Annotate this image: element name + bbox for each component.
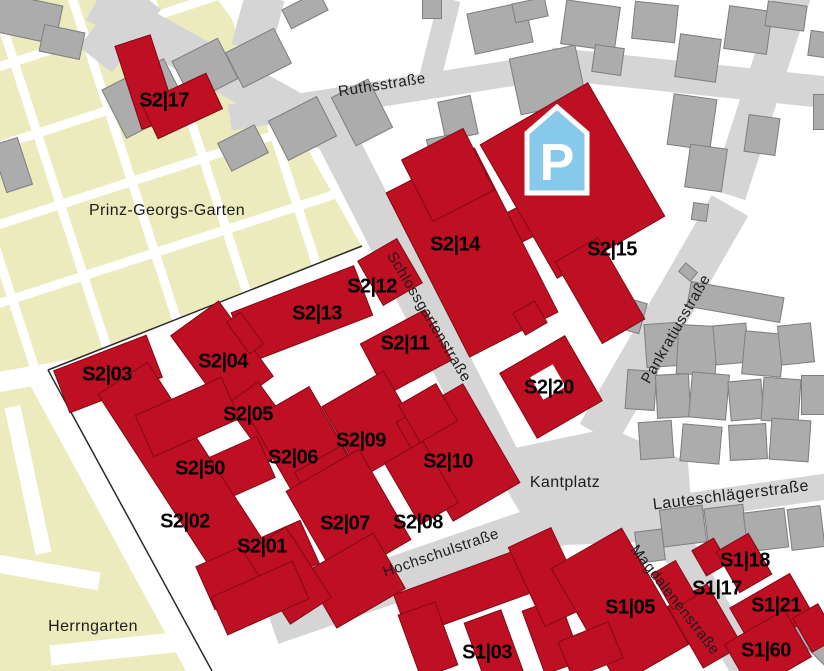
city-building (761, 377, 802, 424)
building-label-s1-21: S1|21 (751, 595, 801, 618)
building-label-s2-06: S2|06 (268, 447, 318, 470)
building-label-s1-18: S1|18 (720, 550, 770, 573)
city-building (638, 420, 675, 460)
garden-path (0, 554, 101, 591)
building-label-s2-20: S2|20 (524, 377, 574, 400)
building-label-s2-09: S2|09 (336, 430, 386, 453)
building-label-s1-03: S1|03 (462, 642, 512, 665)
building-label-s2-07: S2|07 (320, 513, 370, 536)
city-building (777, 322, 815, 365)
building-label-s2-10: S2|10 (423, 451, 473, 474)
city-building (727, 379, 764, 422)
city-building (674, 33, 722, 82)
city-building (560, 0, 621, 51)
building-label-s2-05: S2|05 (223, 404, 273, 427)
city-building (422, 0, 442, 19)
building-label-s2-04: S2|04 (198, 351, 248, 374)
building-label-s2-11: S2|11 (381, 333, 430, 356)
building-label-s2-02: S2|02 (160, 511, 210, 534)
city-building (728, 423, 768, 461)
city-building (281, 0, 328, 29)
parking-letter: P (540, 134, 575, 192)
area-label-kantplatz: Kantplatz (530, 474, 600, 492)
building-label-s2-01: S2|01 (237, 536, 287, 559)
city-building (591, 44, 625, 76)
campus-map: Prinz-Georgs-GartenHerrngartenKantplatzR… (0, 0, 824, 671)
area-label-herrngarten: Herrngarten (48, 618, 138, 636)
building-label-s1-05: S1|05 (605, 597, 655, 620)
building-label-s2-12: S2|12 (347, 276, 397, 299)
building-label-s1-17: S1|17 (692, 578, 742, 601)
city-building (764, 0, 807, 31)
city-building (511, 0, 548, 23)
city-building (801, 375, 824, 415)
building-label-s2-50: S2|50 (175, 458, 225, 481)
city-building (688, 371, 730, 420)
city-building (679, 423, 722, 464)
city-building (684, 144, 728, 193)
building-label-s2-14: S2|14 (430, 234, 480, 257)
city-building (631, 1, 679, 43)
city-building (655, 373, 691, 419)
city-building (744, 114, 781, 156)
city-building (769, 418, 812, 463)
city-building (691, 202, 709, 222)
building-label-s2-17: S2|17 (139, 90, 189, 113)
building-label-s2-13: S2|13 (292, 303, 342, 326)
building-label-s2-15: S2|15 (587, 239, 637, 262)
garden-path (5, 405, 52, 555)
city-building (787, 505, 824, 551)
city-building (813, 94, 824, 130)
city-building (667, 93, 718, 151)
building-label-s1-60: S1|60 (741, 640, 791, 663)
area-label-prinz-georgs-garten: Prinz-Georgs-Garten (89, 202, 245, 220)
building-label-s2-03: S2|03 (82, 364, 132, 387)
city-building (807, 30, 824, 58)
building-label-s2-08: S2|08 (393, 512, 443, 535)
